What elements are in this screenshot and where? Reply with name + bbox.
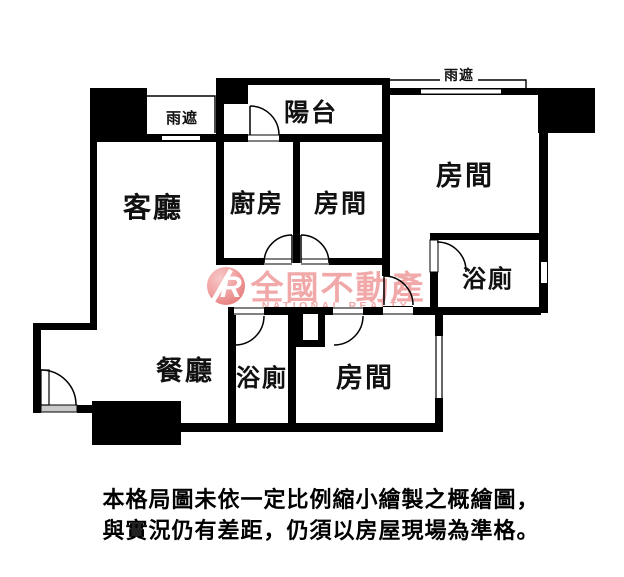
label-bedroom-mid: 房間 xyxy=(314,189,368,218)
bath-right-door-opening xyxy=(430,240,438,272)
label-canopy-right: 雨遮 xyxy=(444,67,474,83)
wall-mid-vertical xyxy=(382,78,390,276)
wall-block-bottom xyxy=(92,401,181,445)
wall-balcony-bottom-left xyxy=(224,134,250,142)
wall-bath-room-divider xyxy=(288,315,296,423)
label-living: 客廳 xyxy=(123,191,183,223)
label-bedroom-right: 房間 xyxy=(436,161,494,191)
window-living-top xyxy=(162,136,200,140)
duct-interior xyxy=(303,314,318,340)
window-topright xyxy=(421,90,501,94)
bottomroom-door-arc xyxy=(334,316,363,345)
label-canopy-left: 雨遮 xyxy=(166,109,198,127)
wall-block-top-left xyxy=(90,88,147,135)
wall-midroom-bottom xyxy=(329,258,390,265)
floor-plan-page: R 全國不動產 NATIONAL REALTY xyxy=(0,0,624,577)
topright-room-door-opening xyxy=(383,306,413,315)
wall-jog xyxy=(33,323,97,330)
kitchen-door-opening xyxy=(264,258,292,265)
watermark-logo-letter: R xyxy=(220,271,242,304)
bottomroom-window xyxy=(435,336,443,398)
disclaimer-line-1: 本格局圖未依一定比例縮小繪製之概繪圖， xyxy=(102,487,539,512)
bath-bottom-door-opening xyxy=(234,307,264,315)
wall-balcony-bottom-right xyxy=(279,134,390,142)
wall-bath-right-top xyxy=(430,233,548,240)
label-balcony: 陽台 xyxy=(284,98,338,127)
label-dining: 餐廳 xyxy=(156,355,214,386)
entry-threshold xyxy=(41,405,77,412)
entry-door-panel xyxy=(41,370,49,405)
wall-bottom-left-piece xyxy=(77,405,93,413)
balcony-door-arc xyxy=(250,106,279,135)
wall-balcony-top xyxy=(216,78,390,85)
watermark: R 全國不動產 NATIONAL REALTY xyxy=(207,267,426,312)
label-bedroom-bottom: 房間 xyxy=(336,363,394,393)
wall-bottom xyxy=(178,423,443,432)
floor-plan-drawing: R 全國不動產 NATIONAL REALTY xyxy=(0,0,624,577)
wall-kitchen-bottom xyxy=(216,258,264,265)
wall-dining-bath-divider xyxy=(228,315,236,423)
wall-kitchen-room-divider xyxy=(293,142,300,263)
wall-left-upper xyxy=(90,134,97,330)
window-right-wall xyxy=(541,262,547,283)
balcony-door-opening xyxy=(248,134,279,142)
label-kitchen: 廚房 xyxy=(230,189,284,218)
label-bath-right: 浴廁 xyxy=(462,265,514,293)
door-arcs xyxy=(41,106,466,405)
disclaimer-line-2: 與實況仍有差距，仍須以房屋現場為準格。 xyxy=(102,518,539,543)
wall-kitchen-left xyxy=(216,85,224,265)
label-bath-bottom: 浴廁 xyxy=(236,364,288,392)
wall-left-lower xyxy=(33,323,41,413)
midroom-door-opening xyxy=(301,258,329,265)
bottomroom-door-opening xyxy=(333,307,363,315)
bath-bottom-door-arc xyxy=(235,316,264,345)
